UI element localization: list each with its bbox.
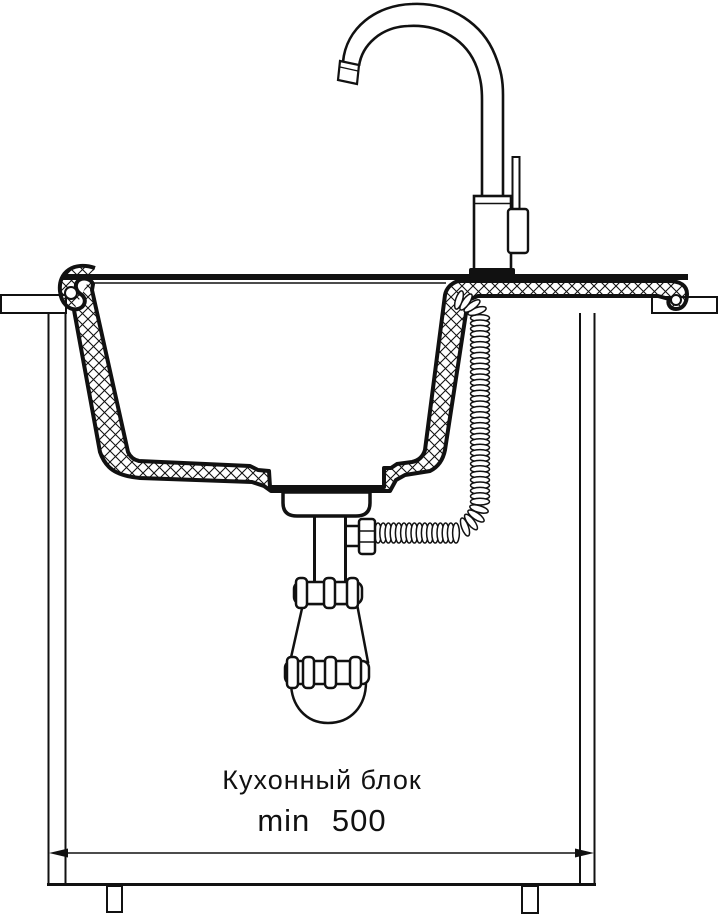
- cabinet-unit-label: Кухонный блок: [222, 765, 421, 795]
- dimension-arrow-right: [575, 849, 594, 858]
- cabinet-left-foot: [107, 886, 122, 912]
- dimension-min-width: [49, 849, 594, 858]
- drawing-canvas: Кухонный блок min 500: [0, 0, 719, 915]
- hose-bend-bottom: [459, 503, 490, 537]
- faucet-aerator-tip: [338, 61, 359, 84]
- cabinet-left-wall: [49, 313, 66, 884]
- cabinet-right-wall: [580, 313, 595, 884]
- hose-vertical: [471, 315, 490, 505]
- faucet-handle-rod: [513, 157, 520, 213]
- sink-body-section: [60, 266, 687, 491]
- min-width-label: min 500: [257, 803, 386, 838]
- cabinet-right-foot: [522, 886, 538, 913]
- hose-horizontal: [375, 523, 460, 543]
- trap-cup-body: [290, 604, 368, 662]
- faucet: [338, 4, 528, 278]
- siphon-assembly: [283, 492, 375, 723]
- hose-connector-nut: [359, 519, 375, 554]
- sink-installation-drawing: Кухонный блок min 500: [0, 0, 719, 915]
- rim-curl-gap-left: [65, 287, 77, 299]
- faucet-base-flange: [469, 268, 515, 278]
- drain-flange: [283, 492, 370, 516]
- faucet-spout: [343, 4, 503, 197]
- trap-coupling-lower: [285, 657, 369, 688]
- faucet-body: [474, 196, 511, 271]
- dimension-arrow-left: [49, 849, 68, 858]
- countertop-left-edge: [1, 295, 66, 313]
- faucet-handle-block: [508, 209, 528, 253]
- trap-coupling-upper: [294, 578, 362, 608]
- rim-curl-gap-right: [671, 295, 681, 305]
- drain-tailpipe: [315, 510, 346, 585]
